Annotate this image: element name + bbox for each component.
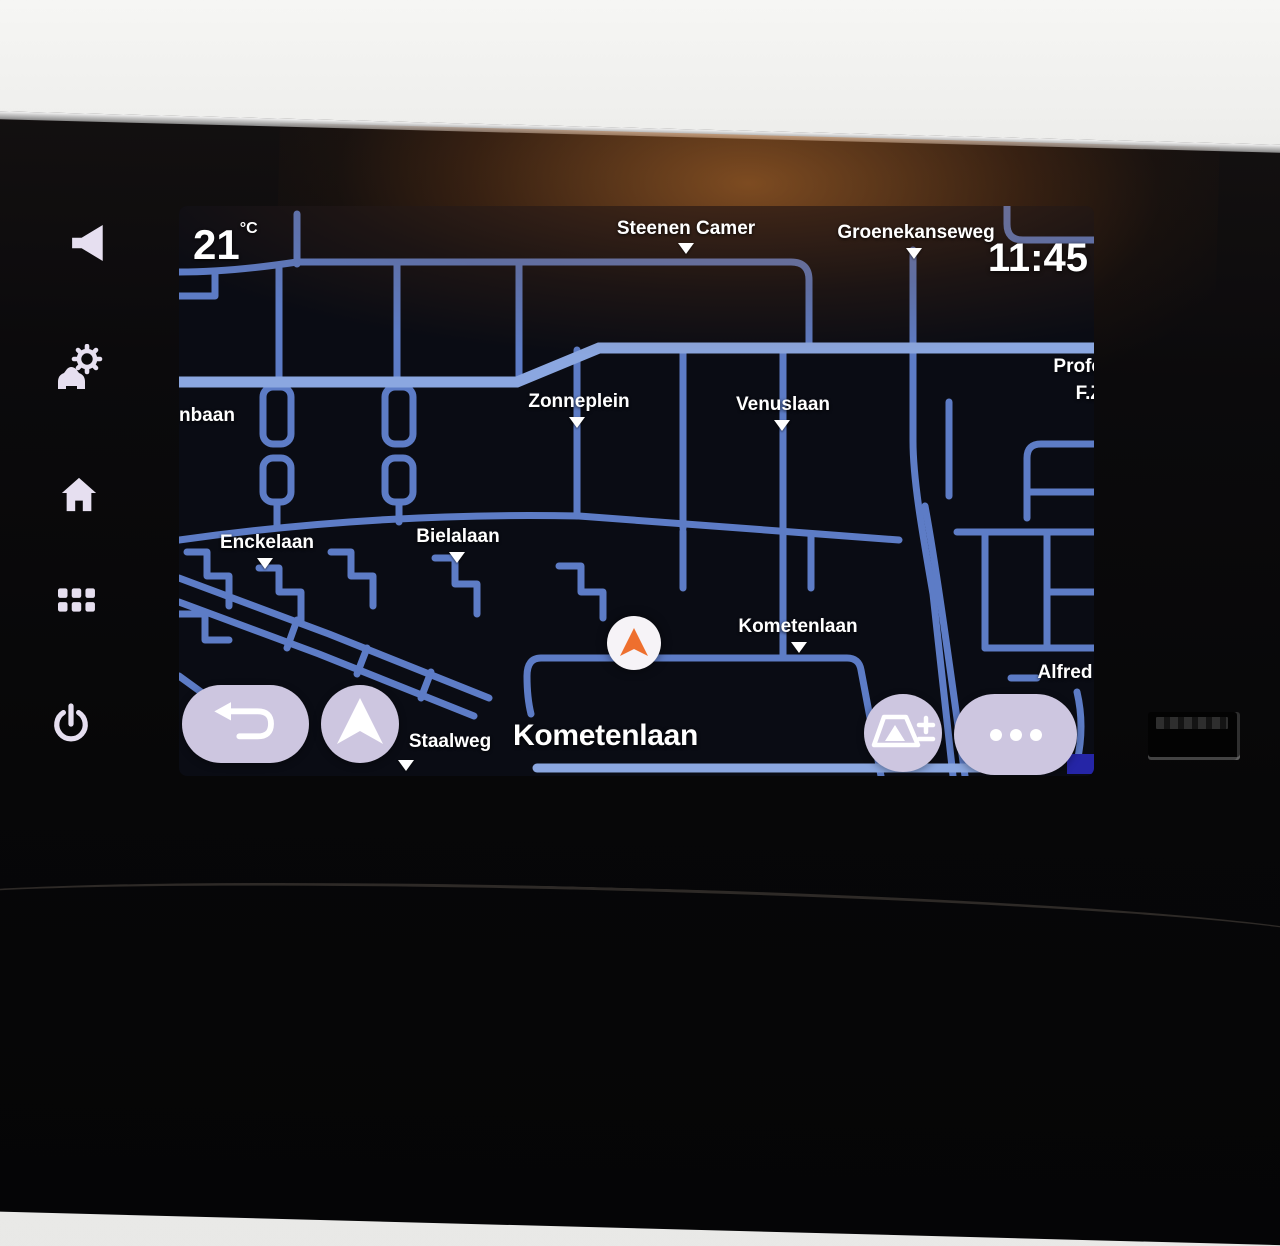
street-label-enckelaan: Enckelaan (220, 532, 314, 554)
car-gear-icon (56, 380, 104, 395)
street-label-staalweg: Staalweg (409, 731, 491, 753)
street-label-nbaan: nbaan (179, 405, 235, 427)
map-perspective-zoom-icon (864, 693, 942, 774)
usb-slot (1156, 717, 1228, 729)
street-label-alfred: Alfred (1038, 662, 1093, 684)
temperature-unit: °C (240, 220, 258, 237)
usb-port (1148, 712, 1240, 760)
navigation-arrow-icon (321, 684, 399, 765)
street-marker (569, 417, 585, 428)
street-label-zonneplein: Zonneplein (528, 391, 629, 413)
map-canvas[interactable] (179, 206, 1094, 776)
street-label-kometenlaan: Kometenlaan (738, 616, 857, 638)
volume-button[interactable] (70, 224, 108, 262)
app-grid-icon (58, 600, 96, 615)
navigation-button[interactable] (321, 685, 399, 763)
back-button[interactable] (182, 685, 309, 763)
street-label-steenen-camer: Steenen Camer (617, 218, 755, 240)
street-label-venuslaan: Venuslaan (736, 394, 830, 416)
home-button[interactable] (60, 474, 98, 514)
map-highlight-rect (1067, 754, 1094, 774)
power-button[interactable] (52, 702, 90, 746)
bezel-chrome-rim (0, 110, 1280, 155)
street-marker (774, 420, 790, 431)
street-label-bielalaan: Bielalaan (416, 526, 499, 548)
temperature-readout: 21°C (193, 220, 258, 269)
street-marker (398, 760, 414, 771)
vehicle-settings-button[interactable] (56, 344, 104, 392)
clock: 11:45 (988, 236, 1088, 281)
navigation-screen: 21°C 11:45 Steenen Camer Groenekanseweg … (179, 206, 1094, 776)
street-marker (257, 558, 273, 569)
home-icon (60, 502, 98, 517)
return-arrow-icon (191, 688, 301, 761)
position-arrow-icon (620, 628, 648, 656)
temperature-value: 21 (193, 221, 240, 268)
current-street-title: Kometenlaan (513, 719, 698, 753)
street-marker (906, 248, 922, 259)
street-marker (791, 642, 807, 653)
street-marker (678, 243, 694, 254)
street-label-groenekanseweg: Groenekanseweg (837, 222, 994, 244)
street-marker (449, 552, 465, 563)
map-zoom-button[interactable] (864, 694, 942, 772)
ellipsis-icon (990, 729, 1042, 741)
bezel-seam-line (0, 869, 1280, 1110)
more-options-button[interactable] (954, 694, 1077, 775)
power-icon (52, 734, 90, 749)
speaker-icon (70, 250, 108, 265)
current-position-marker (607, 616, 661, 670)
street-label-professor-line2: F.Z (1076, 383, 1094, 405)
apps-button[interactable] (58, 588, 96, 612)
street-label-professor-line1: Profe (1053, 356, 1094, 378)
